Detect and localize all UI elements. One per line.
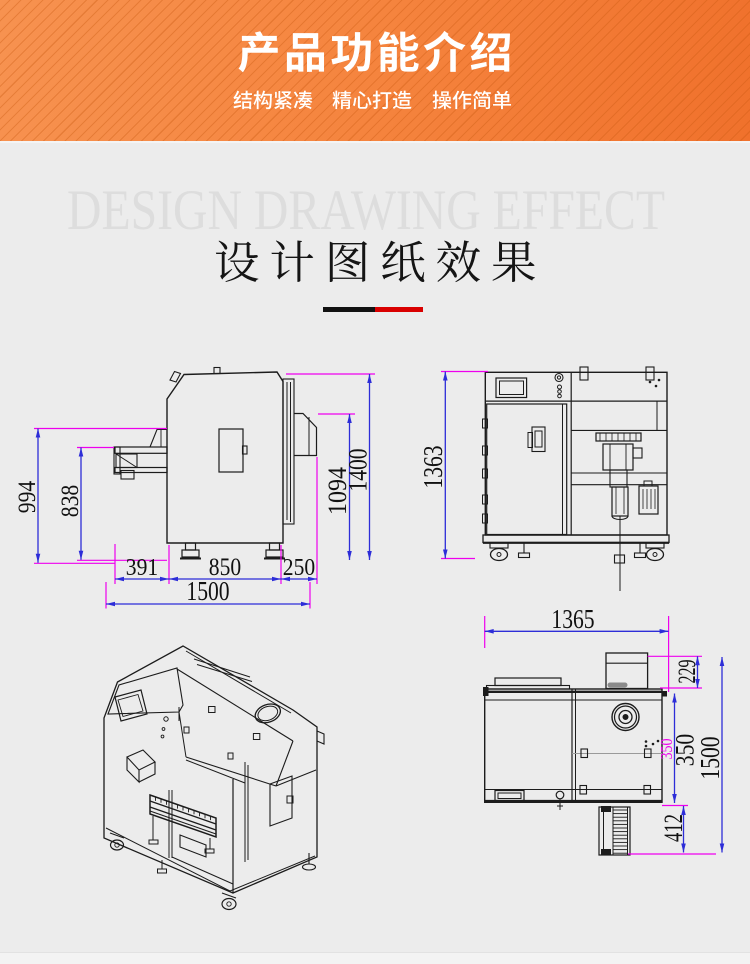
svg-text:994: 994 [14, 480, 41, 513]
svg-text:250: 250 [283, 555, 315, 581]
svg-text:1400: 1400 [343, 448, 372, 491]
svg-text:838: 838 [57, 485, 84, 517]
svg-text:1365: 1365 [551, 604, 594, 634]
svg-text:1500: 1500 [186, 576, 229, 606]
svg-text:229: 229 [674, 660, 701, 684]
svg-text:412: 412 [659, 814, 688, 842]
svg-text:1363: 1363 [418, 445, 448, 488]
svg-text:1500: 1500 [695, 736, 725, 779]
svg-text:391: 391 [126, 555, 158, 581]
